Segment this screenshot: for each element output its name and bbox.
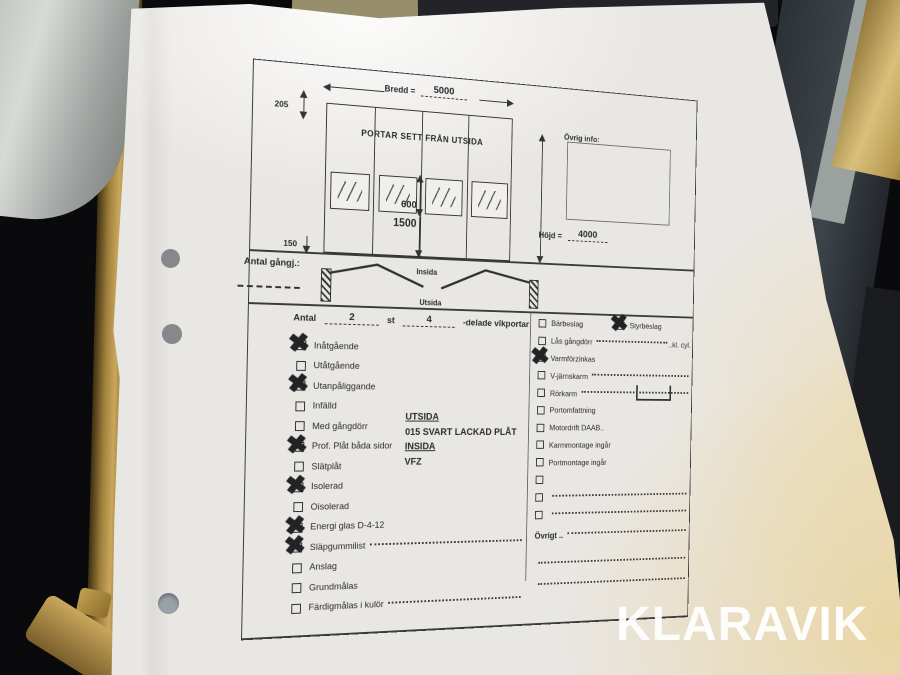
door-window: [425, 178, 463, 216]
hojd-dimension: Höjd = 4000: [539, 226, 608, 243]
checkbox-label: Anslag: [309, 561, 337, 573]
material-utsida-value: 015 SVART LACKAD PLÅT: [405, 425, 517, 440]
insida-label: Insida: [416, 267, 437, 276]
checkbox: [292, 583, 302, 593]
arrowhead: [299, 111, 307, 119]
punch-hole: [158, 593, 179, 614]
klaravik-watermark: KLARAVIK: [616, 597, 868, 652]
suffix-label: ..kl. cyl.: [668, 340, 690, 349]
arrowhead: [416, 175, 423, 183]
utsida-label: Utsida: [419, 298, 441, 307]
antal-label: Antal: [293, 312, 316, 324]
dim-205: 205: [274, 98, 288, 109]
fill-in-dots: [538, 556, 685, 563]
checkbox: [536, 458, 544, 466]
checkbox: [535, 510, 543, 519]
ovrigt-row: Övrigt ..: [534, 520, 687, 548]
checkbox-label: Portomfattning: [550, 406, 596, 415]
checklist-row: Portmontage ingår: [536, 453, 689, 471]
material-insida-value: VFZ: [404, 454, 516, 470]
antal-unit: st: [387, 315, 395, 326]
door-window: [471, 181, 508, 219]
checkbox-label: Prof. Plåt båda sidor: [312, 441, 393, 452]
checkbox: [537, 389, 545, 397]
bredd-dimension: Bredd = 5000: [384, 80, 467, 101]
checkbox-label: Släpgummilist: [310, 540, 366, 552]
material-note: UTSIDA 015 SVART LACKAD PLÅT INSIDA VFZ: [404, 410, 517, 470]
hojd-label: Höjd =: [539, 230, 562, 240]
arrowhead: [300, 90, 308, 99]
dim-600: 600: [391, 198, 417, 211]
ovrig-info-box: [566, 142, 671, 226]
checkbox: [535, 493, 543, 501]
arrowhead: [415, 250, 422, 258]
checklist-row: Motordrift DAAB..: [537, 419, 690, 436]
antal-row: Antal 2 st 4 -delade vikportar: [293, 309, 529, 329]
checkbox: [537, 423, 545, 431]
fill-in-dots: [567, 529, 685, 534]
checkbox-label: Slätplåt: [311, 461, 341, 472]
checkbox-label: Bärbeslag: [551, 319, 583, 329]
fill-in-dots: [538, 577, 685, 585]
paper-sheet: PORTAR SETT FRÅN UTSIDA Bredd = 5000 205…: [0, 0, 900, 675]
arrowhead: [323, 83, 331, 92]
blank-dotted-line: [534, 563, 687, 590]
checkbox: [295, 421, 305, 431]
antal-gangj-label: Antal gångj.:: [244, 256, 300, 269]
ovrigt-label: Övrigt ..: [535, 530, 564, 540]
bredd-value: 5000: [421, 83, 468, 100]
checkbox: [295, 442, 305, 452]
checkbox: [292, 563, 302, 573]
photo-of-order-form: PORTAR SETT FRÅN UTSIDA Bredd = 5000 205…: [0, 0, 900, 675]
checkbox: [539, 319, 547, 328]
checkbox-label: Färdigmålas i kulör: [308, 599, 383, 613]
checkbox: [538, 354, 546, 362]
arrowhead: [416, 209, 423, 217]
fill-in-dots: [552, 509, 686, 514]
right-checklist: Bärbeslag✖StyrbeslagLås gångdörr..kl. cy…: [534, 314, 692, 590]
fill-in-dots: [552, 493, 686, 497]
checklist-row: Karmmontage ingår: [536, 436, 689, 454]
checkbox: [292, 543, 302, 553]
checkbox-label: Isolerad: [311, 481, 343, 492]
checkbox-label: Infälld: [313, 401, 337, 412]
portomfattning-sketch: [636, 385, 671, 401]
bredd-label: Bredd =: [384, 84, 415, 96]
checkbox-label: Grundmålas: [309, 581, 358, 594]
checkbox: [617, 321, 624, 329]
sections-value: 4: [403, 313, 455, 328]
fill-in-dots: [370, 539, 522, 545]
arrowhead: [539, 134, 546, 142]
fill-in-dots: [581, 391, 688, 394]
checkbox: [538, 336, 546, 345]
arrowhead: [302, 246, 310, 254]
fill-in-dots: [592, 374, 688, 377]
checkbox: [293, 523, 303, 533]
checkbox: [294, 462, 304, 472]
checkbox: [537, 406, 545, 414]
checkbox: [296, 361, 306, 371]
checkbox-label: Inåtgående: [314, 340, 359, 352]
material-utsida-heading: UTSIDA: [405, 410, 517, 425]
antal-value: 2: [325, 310, 379, 325]
checkbox-label: Karmmontage ingår: [549, 440, 611, 449]
checkbox: [295, 401, 305, 411]
checkbox: [294, 482, 304, 492]
material-insida-heading: INSIDA: [405, 440, 517, 455]
checkbox-label: Utanpåliggande: [313, 381, 376, 392]
checkbox: [293, 502, 303, 512]
antal-suffix: -delade vikportar: [463, 318, 529, 330]
checklist-row: Portomfattning: [537, 402, 690, 420]
checkbox-label: V-järnskarm: [550, 371, 588, 381]
dim-150: 150: [283, 238, 297, 249]
checkbox-label: Motordrift DAAB..: [549, 423, 604, 432]
checkbox-label: Styrbeslag: [629, 321, 661, 331]
checkbox-label: Utåtgående: [313, 360, 359, 372]
checkbox: [296, 381, 306, 391]
punch-hole: [162, 324, 182, 344]
checkbox: [536, 476, 544, 484]
checkbox-label: Varmförzinkas: [551, 354, 596, 364]
fill-in-dots: [597, 340, 667, 344]
checkbox: [291, 603, 301, 613]
checkbox-label: Oisolerad: [311, 501, 350, 513]
checkbox: [538, 371, 546, 379]
punch-hole: [161, 249, 180, 268]
dim-1500: 1500: [385, 217, 416, 230]
checklist-row: ✖Utanpåliggande: [296, 376, 527, 398]
checkbox-label: Portmontage ingår: [549, 457, 607, 467]
checkbox-label: Med gångdörr: [312, 421, 368, 432]
checkbox-label: Lås gångdörr: [551, 336, 593, 346]
fill-in-line: [237, 285, 299, 289]
arrowhead: [536, 256, 543, 264]
checklist-row: V-järnskarm: [538, 367, 691, 386]
checkbox: [297, 340, 307, 350]
arrowhead: [507, 99, 514, 107]
order-form: PORTAR SETT FRÅN UTSIDA Bredd = 5000 205…: [241, 59, 697, 641]
left-checklist: ✖InåtgåendeUtåtgående✖UtanpåliggandeInfä…: [291, 335, 527, 619]
hojd-value: 4000: [568, 228, 608, 243]
checkbox-label: Energi glas D-4-12: [310, 520, 384, 533]
checkbox: [536, 441, 544, 449]
checkbox-label: Rörkarm: [550, 388, 577, 398]
fill-in-dots: [388, 596, 520, 604]
door-window: [330, 172, 370, 211]
